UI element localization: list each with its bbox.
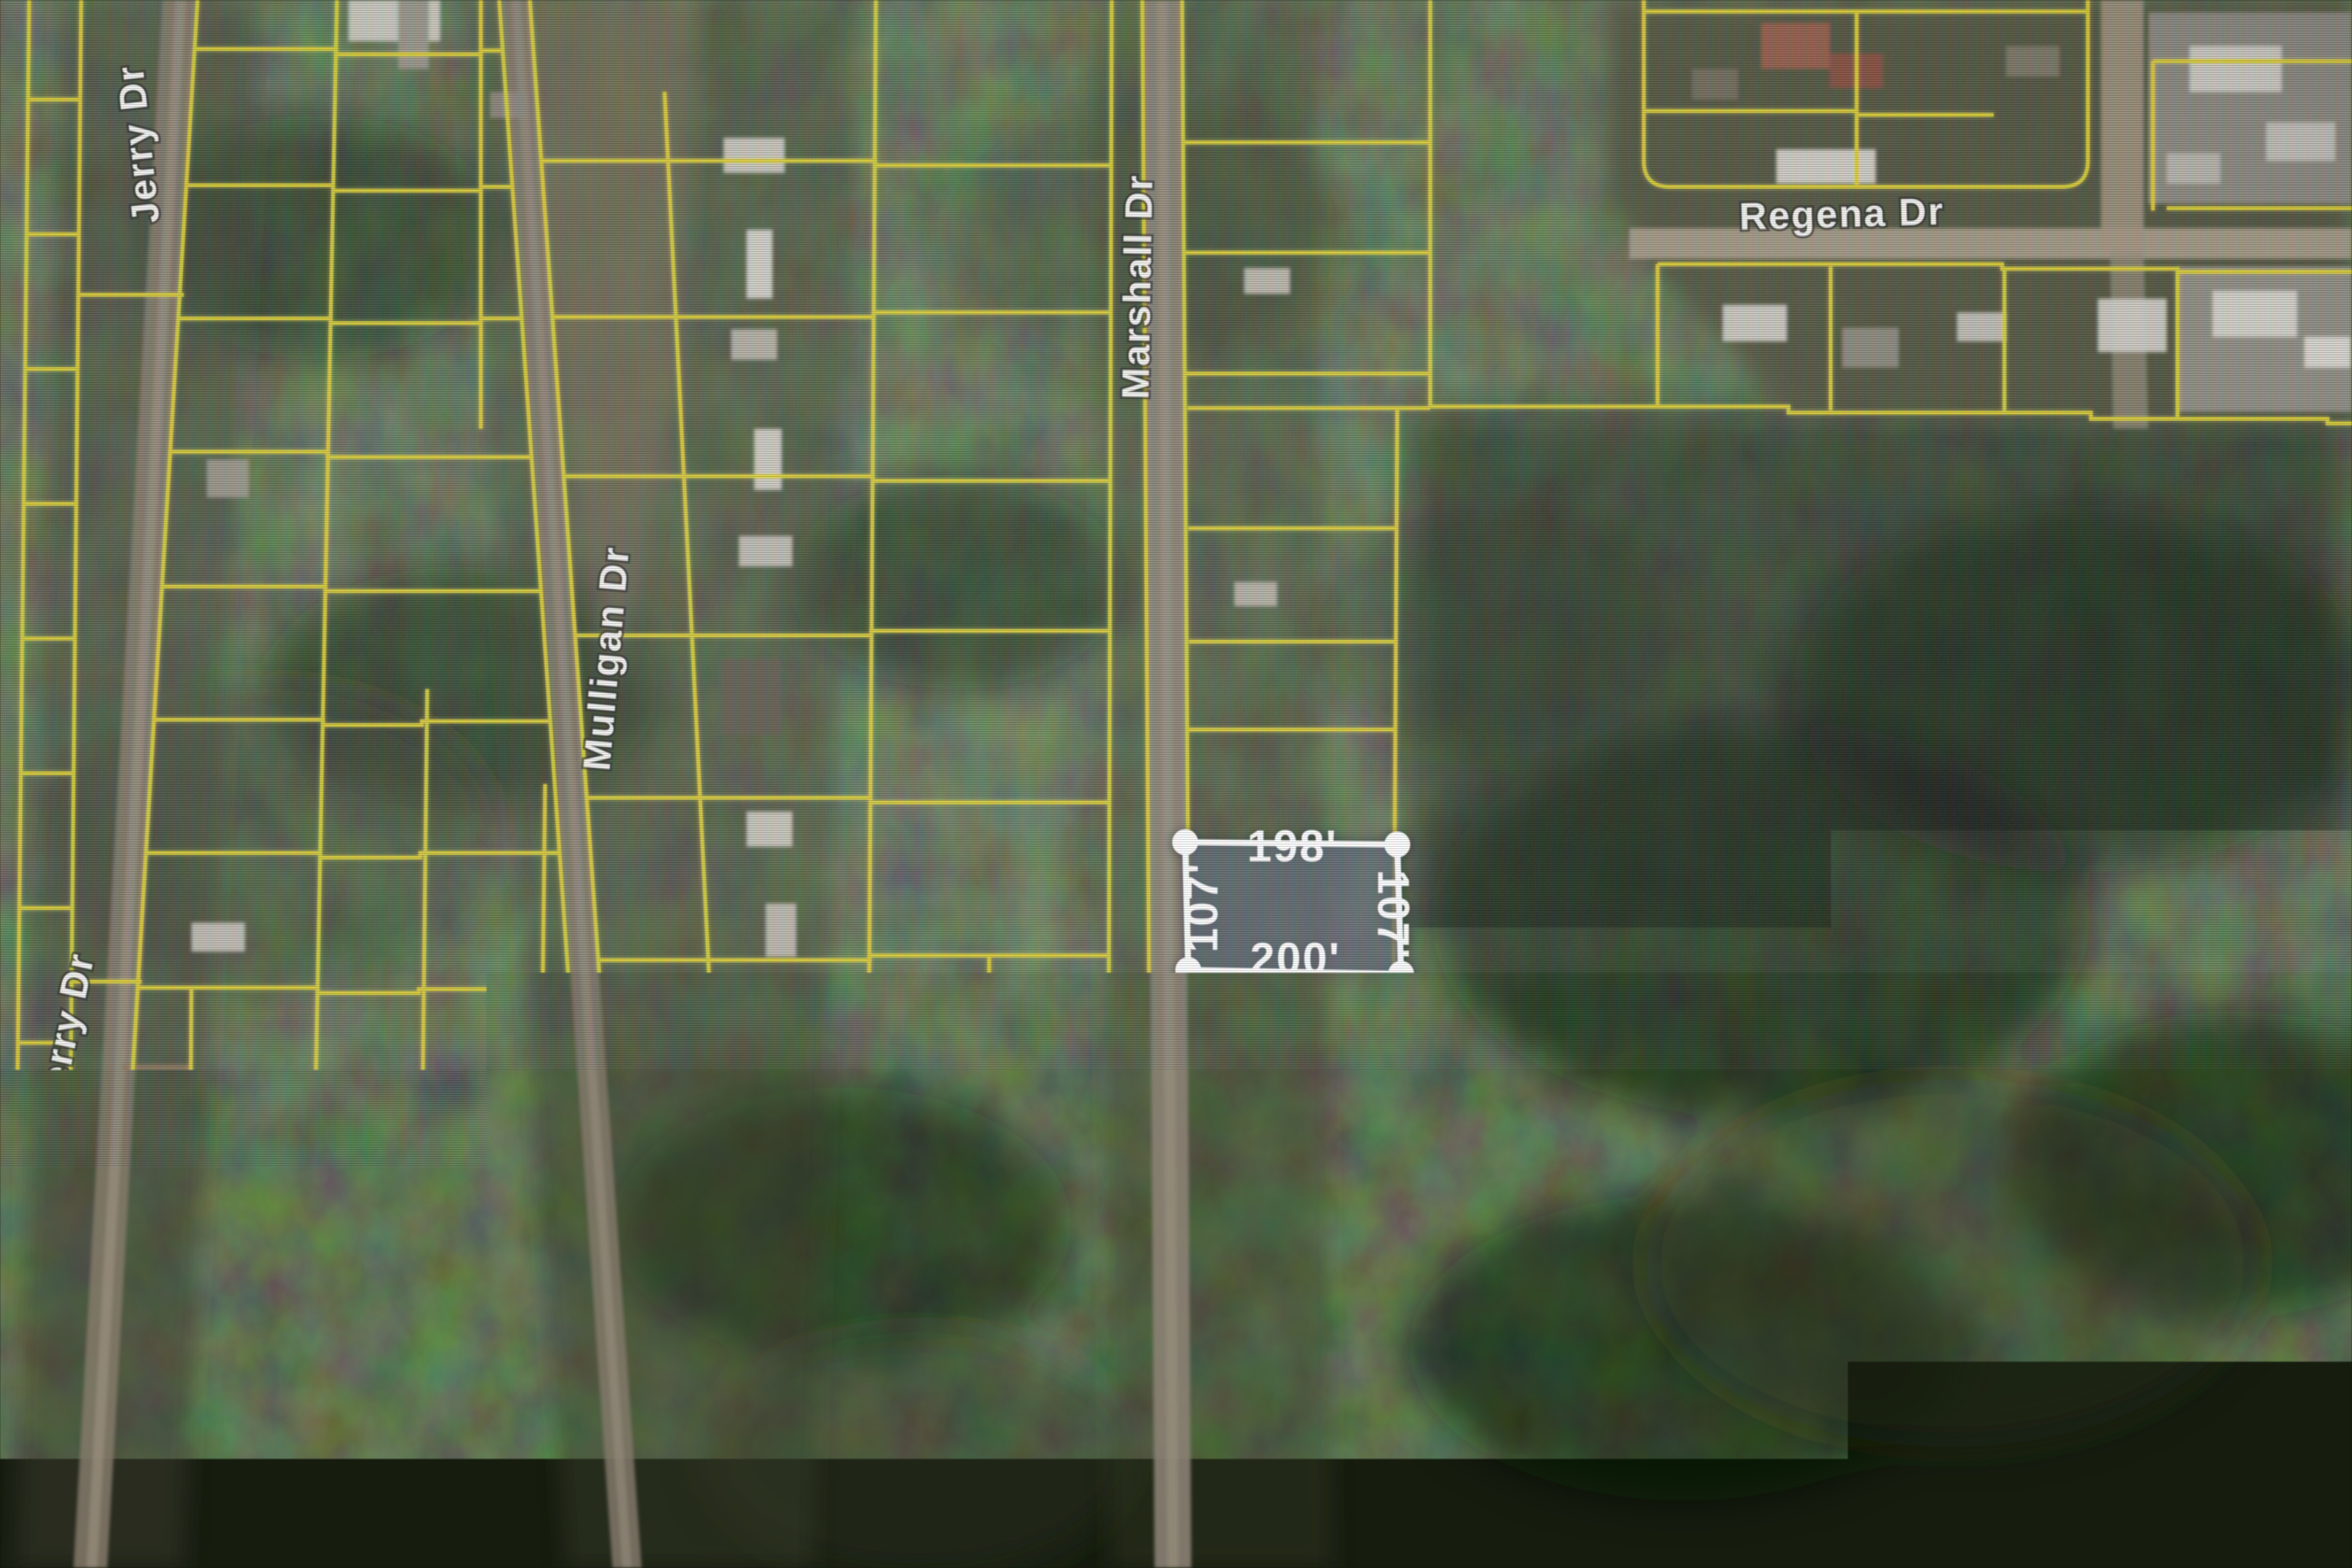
photo-grain bbox=[0, 0, 2352, 1537]
screen-photo: Jerry Dr Jerry Dr Mulligan Dr Marshall D… bbox=[0, 0, 2352, 1568]
map-canvas[interactable]: Jerry Dr Jerry Dr Mulligan Dr Marshall D… bbox=[0, 0, 2352, 1568]
bottom-strip: GREATER ALABAMA MLS bbox=[0, 1530, 2352, 1568]
satellite-map: Jerry Dr Jerry Dr Mulligan Dr Marshall D… bbox=[0, 0, 2352, 1568]
logo-text-line3: MLS bbox=[2275, 1559, 2305, 1568]
